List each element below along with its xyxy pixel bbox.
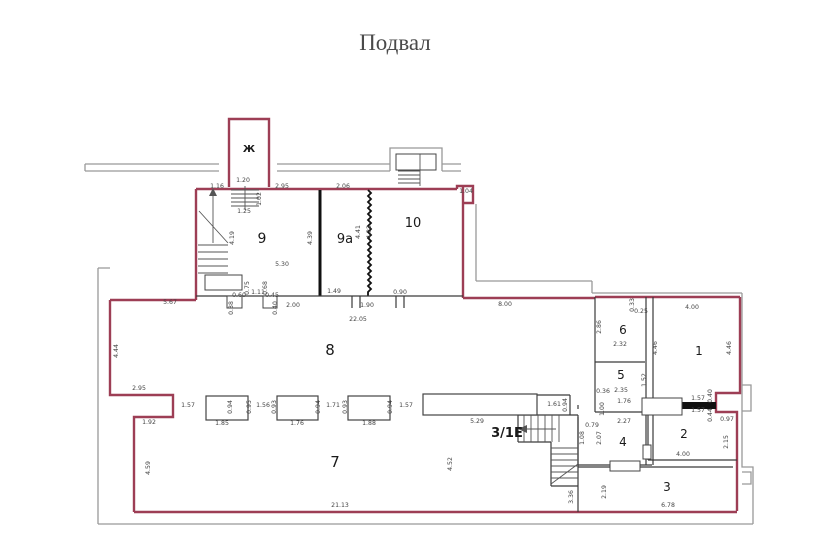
dimension-labels: 1.161.202.952.061.041.251.024.194.394.41…	[113, 177, 734, 509]
dimension-label: 1.76	[290, 420, 304, 427]
dimension-label: 4.44	[113, 344, 120, 358]
column-wide	[423, 394, 537, 415]
dimension-label: 0.25	[634, 308, 648, 315]
dimension-label: 4.52	[447, 457, 454, 471]
room-7: 7	[330, 453, 340, 471]
dimension-label: 4.00	[685, 304, 699, 311]
dimension-label: 0.93	[271, 400, 278, 414]
column	[348, 396, 390, 420]
dimension-label: 2.27	[617, 418, 631, 425]
dimension-label: 0.97	[720, 416, 734, 423]
dimension-label: 4.46	[652, 341, 659, 355]
column	[277, 396, 318, 420]
room-6: 6	[619, 323, 627, 337]
dimension-label: 0.94	[562, 398, 569, 412]
dimension-label: 2.86	[596, 320, 603, 334]
dimension-label: 4.00	[676, 451, 690, 458]
dimension-label: 0.40	[272, 301, 279, 315]
dimension-label: 2.19	[601, 485, 608, 499]
main-stairs-flight-a	[524, 415, 559, 442]
dimension-label: 1.92	[142, 419, 156, 426]
shaft-stairs	[231, 186, 259, 210]
dimension-label: 2.32	[613, 341, 627, 348]
floor-plan-page: Подвал	[0, 0, 820, 558]
dimension-label: 1.56	[256, 402, 270, 409]
dimension-label: 1.76	[617, 398, 631, 405]
dimension-label: 4.41	[355, 225, 362, 239]
dimension-label: 1.49	[327, 288, 341, 295]
wall-9a-10-zigzag	[368, 190, 371, 296]
dimension-label: 4.39	[307, 231, 314, 245]
dimension-label: 8.00	[498, 301, 512, 308]
dimension-label: 6.78	[661, 502, 675, 509]
dimension-label: 1.57	[399, 402, 413, 409]
dimension-label: 1.71	[326, 402, 340, 409]
dimension-label: 1.61	[547, 401, 561, 408]
dimension-label: 2.07	[596, 431, 603, 445]
dimension-label: 0.90	[393, 289, 407, 296]
room-10: 10	[405, 216, 422, 231]
room-3: 3	[663, 480, 671, 494]
floor-plan-svg: 99а1087654123Ж3/1Е 1.161.202.952.061.041…	[0, 0, 820, 558]
dimension-label: 0.94	[387, 400, 394, 414]
dimension-label: 0.36	[596, 388, 610, 395]
dimension-label: 2.35	[614, 387, 628, 394]
dimension-label: 0.94	[227, 400, 234, 414]
dimension-label: 1.25	[237, 208, 251, 215]
dimension-label: 0.44	[707, 408, 714, 422]
main-stairs-flight-b	[551, 448, 578, 484]
dimension-label: 21.13	[331, 502, 349, 509]
dimension-label: 0.95	[246, 400, 253, 414]
dimension-label: 1.00	[599, 402, 606, 416]
dimension-label: 0.45	[265, 292, 279, 299]
dimension-label: 5.29	[470, 418, 484, 425]
dimension-label: 1.20	[236, 177, 250, 184]
dimension-label: 1.52	[641, 373, 648, 387]
dimension-label: 1.02	[256, 192, 263, 206]
dimension-label: 2.95	[275, 183, 289, 190]
dimension-label: 5.30	[275, 261, 289, 268]
room-2: 2	[680, 427, 688, 441]
dimension-label: 2.06	[336, 183, 350, 190]
dimension-label: 3.36	[568, 490, 575, 504]
dimension-label: 1.90	[360, 302, 374, 309]
room-1: 1	[695, 344, 703, 358]
room-4: 4	[619, 435, 627, 449]
dimension-label: 5.67	[163, 299, 177, 306]
dimension-label: 1.16	[210, 183, 224, 190]
dimension-label: 1.85	[215, 420, 229, 427]
bump-landing	[396, 154, 436, 170]
dimension-label: 1.57	[181, 402, 195, 409]
dimension-label: 0.79	[585, 422, 599, 429]
room-9: 9	[258, 231, 267, 247]
dimension-label: 0.40	[707, 389, 714, 403]
room-5: 5	[617, 368, 625, 382]
dimension-label: 1.57	[691, 395, 705, 402]
dimension-label: 1.88	[362, 420, 376, 427]
dimension-label: 0.38	[228, 301, 235, 315]
stairwell-letter: Ж	[243, 144, 256, 155]
dimension-label: 1.57	[691, 407, 705, 414]
dimension-label: 4.59	[145, 461, 152, 475]
dimension-label: 2.95	[132, 385, 146, 392]
unit-label-3-1e: 3/1Е	[491, 426, 523, 441]
dimension-label: 4.19	[229, 231, 236, 245]
room-9a: 9а	[337, 232, 353, 247]
dimension-label: 0.94	[315, 400, 322, 414]
dimension-label: 4.32	[366, 225, 373, 239]
room-8: 8	[325, 341, 335, 359]
dimension-label: 0.93	[342, 400, 349, 414]
dimension-label: 2.15	[723, 435, 730, 449]
dimension-label: 1.08	[579, 431, 586, 445]
dimension-label: 22.05	[349, 316, 367, 323]
room9-stairs	[198, 190, 228, 273]
dimension-label: 0.60	[232, 292, 246, 299]
dimension-label: 2.00	[286, 302, 300, 309]
dimension-label: 4.46	[726, 341, 733, 355]
dimension-label: 1.04	[459, 188, 473, 195]
